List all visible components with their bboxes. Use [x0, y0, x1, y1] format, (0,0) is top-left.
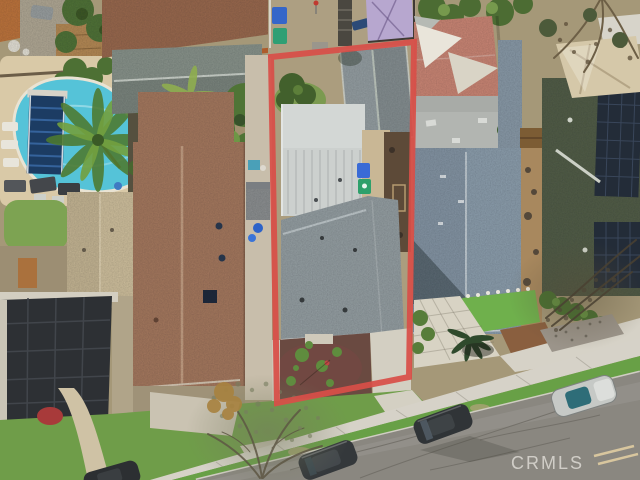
aerial-scene — [0, 0, 640, 480]
skylight — [203, 290, 217, 303]
green-trash-bin — [273, 28, 287, 44]
pool-cover-roller — [25, 89, 68, 174]
wood-crate — [18, 258, 37, 288]
front-gable-roof — [281, 196, 404, 340]
pole-structure — [338, 0, 352, 46]
brown-shingle-roof — [133, 92, 245, 388]
roof-vent — [216, 223, 223, 230]
blue-barrel — [253, 223, 263, 233]
blue-barrel-2 — [248, 234, 256, 242]
blue-roof-upper-wing — [498, 40, 522, 150]
purple-tarp-canopy — [366, 0, 414, 42]
flat-roof-section — [281, 104, 365, 216]
outlined-lot-interior — [271, 42, 414, 403]
solar-carport — [0, 292, 118, 426]
carport-post-rail — [0, 300, 7, 426]
red-flower-bush — [37, 407, 63, 425]
roof-vent-2 — [219, 255, 226, 262]
lounge-chairs — [1, 122, 19, 167]
blue-trash-bin — [272, 7, 287, 24]
lot-blue-bin — [357, 163, 370, 178]
small-lawn — [4, 200, 68, 250]
tan-garage — [67, 192, 133, 308]
aerial-listing-photo: CRMLS — [0, 0, 640, 480]
patio-chair — [23, 49, 30, 56]
solar-array-upper — [594, 88, 640, 197]
crmls-watermark: CRMLS — [511, 453, 584, 474]
red-stake — [314, 1, 319, 6]
side-path — [112, 296, 136, 422]
patio-table — [8, 40, 20, 52]
